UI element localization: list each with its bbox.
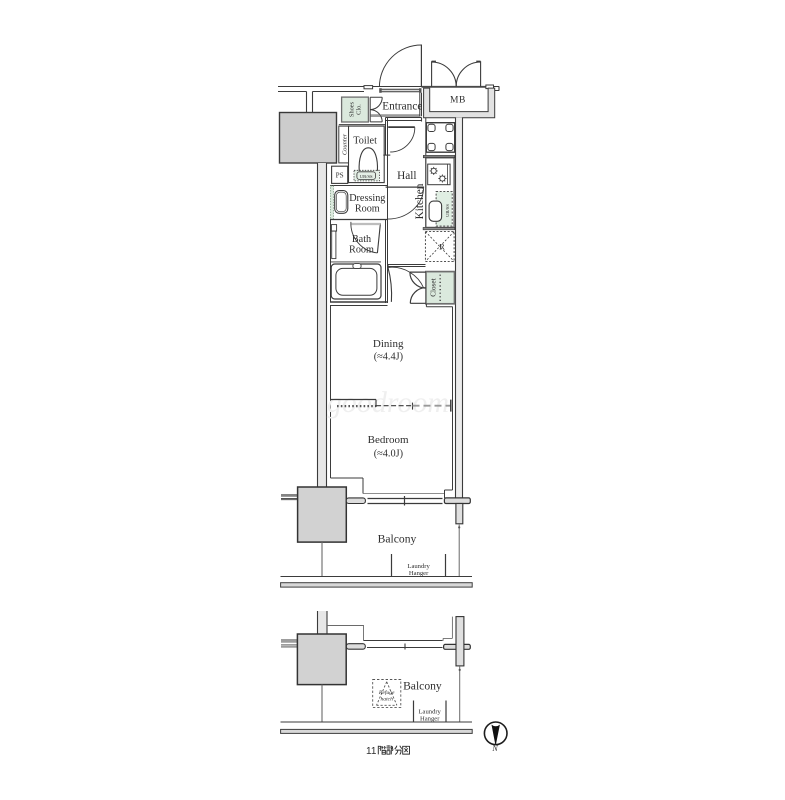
- svg-text:Shoes: Shoes: [348, 101, 355, 117]
- svg-text:goodroom: goodroom: [327, 386, 449, 419]
- svg-text:Hanger: Hanger: [409, 570, 429, 577]
- svg-text:Refuge: Refuge: [378, 689, 395, 696]
- svg-text:Dining: Dining: [373, 338, 404, 350]
- svg-text:Room: Room: [349, 245, 374, 256]
- svg-text:Bedroom: Bedroom: [368, 434, 409, 446]
- svg-text:(≈4.0J): (≈4.0J): [374, 448, 403, 459]
- svg-text:hatch: hatch: [380, 697, 393, 703]
- svg-text:Dressing: Dressing: [349, 193, 385, 204]
- svg-text:Room: Room: [355, 204, 380, 215]
- svg-text:Clo.: Clo.: [355, 104, 362, 115]
- svg-text:Kitchen: Kitchen: [414, 183, 426, 219]
- svg-text:Closet: Closet: [430, 278, 438, 296]
- svg-text:Toilet: Toilet: [353, 135, 377, 146]
- svg-text:Laundry: Laundry: [419, 709, 442, 716]
- svg-text:Hanger: Hanger: [420, 716, 440, 723]
- svg-text:MB: MB: [450, 95, 466, 105]
- svg-text:Balcony: Balcony: [378, 532, 417, 545]
- svg-text:Hall: Hall: [397, 170, 416, 182]
- svg-text:Balcony: Balcony: [403, 679, 442, 692]
- svg-text:Counter: Counter: [341, 133, 348, 155]
- svg-text:11: 11: [366, 746, 377, 757]
- svg-text:N: N: [491, 744, 498, 753]
- svg-text:R: R: [439, 242, 445, 252]
- svg-text:Bath: Bath: [352, 234, 371, 245]
- svg-text:Laundry: Laundry: [407, 563, 430, 570]
- svg-text:(≈4.4J): (≈4.4J): [374, 352, 403, 363]
- svg-text:UB/SS: UB/SS: [360, 174, 373, 179]
- svg-text:PS: PS: [336, 172, 344, 180]
- svg-text:UB/SS: UB/SS: [445, 204, 450, 217]
- svg-text:Entrance: Entrance: [382, 100, 422, 112]
